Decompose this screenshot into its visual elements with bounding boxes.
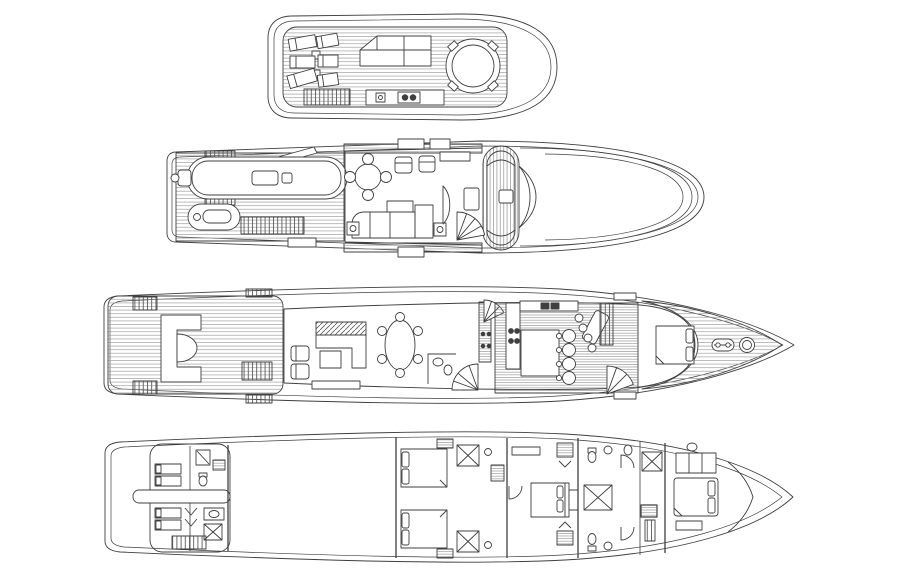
boarding-step bbox=[246, 289, 272, 297]
vip-bench bbox=[676, 521, 702, 530]
jet-ski bbox=[188, 204, 240, 230]
crew-toilet bbox=[199, 476, 207, 486]
louver-locker bbox=[557, 531, 573, 545]
dining-chair bbox=[414, 327, 423, 336]
crew-sink-cabinet bbox=[204, 508, 224, 520]
bar-sink bbox=[376, 93, 385, 102]
bar-stool bbox=[584, 334, 592, 342]
windshield-line bbox=[520, 148, 692, 246]
sofa bbox=[352, 212, 415, 238]
armchair bbox=[291, 346, 309, 361]
galley-sink bbox=[541, 303, 549, 309]
straight-stairs bbox=[600, 303, 613, 345]
spiral-staircase bbox=[452, 364, 478, 390]
bar-stool bbox=[588, 344, 596, 352]
dresser bbox=[512, 447, 540, 455]
dumbwaiter-dot bbox=[487, 332, 491, 336]
place-setting bbox=[556, 347, 561, 352]
pillow bbox=[557, 500, 563, 512]
galley-sink bbox=[551, 303, 559, 309]
dumbwaiter-dot bbox=[481, 332, 485, 336]
crew-berth bbox=[155, 520, 181, 530]
galley-island bbox=[521, 330, 559, 376]
dining-chair bbox=[414, 355, 423, 364]
galley-counter bbox=[506, 303, 520, 369]
deck-plans-svg bbox=[0, 0, 900, 582]
windlass-drum bbox=[726, 343, 730, 347]
pillow bbox=[686, 347, 693, 361]
coffee-table bbox=[320, 351, 341, 368]
pillow bbox=[686, 329, 693, 343]
foredeck-table bbox=[499, 190, 513, 203]
crew-stairs bbox=[172, 536, 206, 549]
toilet bbox=[588, 534, 596, 545]
dumbwaiter-dot bbox=[481, 344, 485, 348]
lower-deck-plan bbox=[105, 432, 793, 562]
companionway-stairs bbox=[491, 465, 504, 481]
capstan bbox=[740, 338, 755, 353]
aft-stairs bbox=[133, 381, 157, 394]
dining-chair bbox=[396, 369, 405, 378]
tender-propeller bbox=[171, 174, 179, 182]
cooktop-burner bbox=[509, 339, 514, 344]
grill bbox=[398, 92, 420, 103]
dining-table bbox=[385, 320, 415, 370]
locker bbox=[437, 439, 453, 448]
sideboard bbox=[312, 381, 360, 389]
armchair bbox=[419, 156, 435, 172]
bar-stool bbox=[563, 330, 576, 343]
deck-box bbox=[398, 139, 424, 149]
sink bbox=[604, 542, 612, 550]
end-table bbox=[434, 223, 446, 236]
nightstand bbox=[569, 490, 578, 510]
crew-berth bbox=[155, 464, 181, 474]
boarding-step bbox=[246, 395, 272, 403]
tender-console bbox=[252, 171, 278, 185]
stairs-to-bridge-deck bbox=[304, 89, 350, 105]
headboard bbox=[565, 483, 569, 517]
companionway-stairs bbox=[242, 362, 272, 380]
crew-berth bbox=[155, 508, 181, 518]
bar-stool bbox=[563, 358, 576, 371]
game-chair bbox=[381, 172, 392, 183]
sink bbox=[604, 446, 612, 454]
tender-engine bbox=[178, 170, 191, 186]
bridge-deck-plan bbox=[167, 139, 704, 257]
tv-cabinet bbox=[316, 322, 366, 335]
deck-box bbox=[430, 139, 450, 149]
door-swing bbox=[621, 455, 634, 468]
toilet bbox=[588, 452, 596, 463]
cooktop-burner bbox=[515, 329, 520, 334]
chevron bbox=[559, 522, 571, 528]
spiral-staircase bbox=[457, 212, 485, 240]
game-chair bbox=[363, 154, 374, 165]
vip-bulkhead bbox=[728, 462, 753, 532]
place-setting bbox=[556, 361, 561, 366]
bar-stool bbox=[579, 324, 587, 332]
sun-deck-plan bbox=[268, 14, 557, 120]
aft-stairs bbox=[133, 297, 157, 310]
windlass-drum bbox=[716, 343, 720, 347]
foredeck-seat bbox=[519, 166, 536, 228]
tv-console bbox=[443, 186, 450, 224]
dining-chair bbox=[396, 313, 405, 322]
grill-burner bbox=[410, 95, 416, 101]
armchair bbox=[291, 364, 309, 379]
laundry-stairs bbox=[645, 520, 655, 541]
locker bbox=[213, 460, 225, 470]
end-table bbox=[347, 222, 359, 235]
day-head-sink bbox=[433, 358, 443, 366]
crew-berth bbox=[155, 476, 181, 486]
dining-chair bbox=[378, 327, 387, 336]
pillow bbox=[402, 530, 409, 545]
berth-ladder bbox=[185, 508, 197, 526]
game-chair bbox=[363, 190, 374, 201]
sun-lounger bbox=[318, 55, 338, 67]
coffee-table bbox=[387, 201, 413, 212]
vip-closet bbox=[676, 453, 716, 473]
grill-burner bbox=[402, 95, 408, 101]
main-deck-plan bbox=[104, 287, 794, 404]
cooktop-burner bbox=[515, 339, 520, 344]
bar-stool bbox=[563, 372, 576, 385]
armchair bbox=[395, 157, 412, 173]
bar-stool bbox=[563, 344, 576, 357]
boat-deck-stairs bbox=[241, 217, 304, 234]
place-setting bbox=[556, 333, 561, 338]
sun-lounger bbox=[290, 56, 315, 68]
side-gate bbox=[288, 238, 316, 247]
deck-box bbox=[398, 247, 424, 257]
cooktop-burner bbox=[509, 329, 514, 334]
dumbwaiter-dot bbox=[487, 344, 491, 348]
deck-box bbox=[614, 392, 636, 399]
helm-console bbox=[464, 188, 479, 210]
locker bbox=[437, 549, 453, 558]
place-setting bbox=[556, 375, 561, 380]
deck-box bbox=[614, 293, 636, 300]
door-swing bbox=[509, 486, 522, 499]
pillow bbox=[708, 498, 715, 513]
pillow bbox=[402, 469, 409, 484]
door-swing bbox=[621, 527, 634, 540]
pillow bbox=[402, 513, 409, 528]
game-table bbox=[355, 164, 381, 190]
pillow bbox=[708, 481, 715, 496]
sink bbox=[687, 443, 697, 451]
sofa-chaise bbox=[415, 205, 433, 238]
washer-dryer bbox=[641, 505, 657, 517]
louver-locker bbox=[557, 443, 573, 457]
dining-chair bbox=[378, 355, 387, 364]
tender-chock bbox=[205, 151, 235, 157]
game-chair bbox=[345, 172, 356, 183]
sun-lounger bbox=[317, 73, 338, 88]
pillow bbox=[402, 452, 409, 467]
yacht-deck-plans-page bbox=[0, 0, 900, 582]
vanity-sink bbox=[485, 542, 492, 549]
toilet bbox=[624, 445, 632, 455]
cabinet bbox=[440, 152, 470, 161]
day-head-toilet bbox=[444, 365, 452, 375]
vanity-sink bbox=[485, 449, 492, 456]
bar-stool bbox=[575, 314, 583, 322]
corridor bbox=[133, 490, 230, 503]
toilet-tank bbox=[588, 546, 596, 551]
chevron bbox=[559, 461, 571, 467]
pillow bbox=[557, 486, 563, 498]
